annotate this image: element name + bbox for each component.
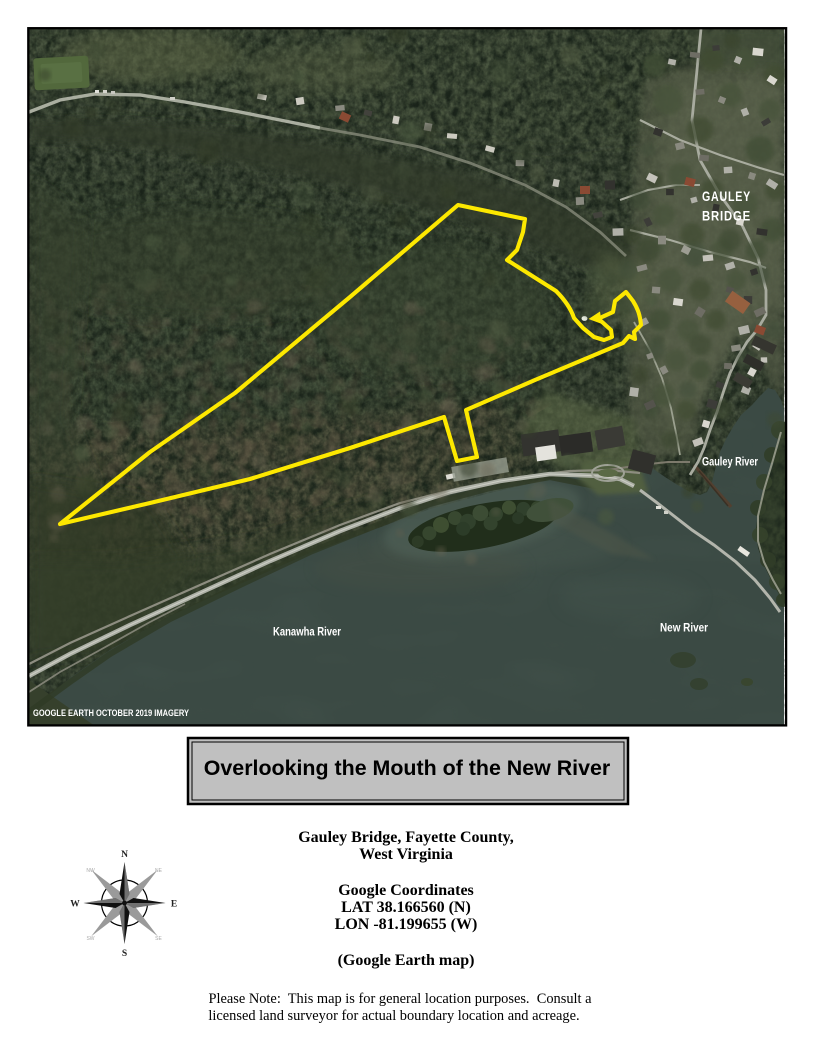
svg-text:LON -81.199655 (W): LON -81.199655 (W)	[335, 916, 478, 933]
svg-text:Gauley River: Gauley River	[702, 455, 758, 469]
svg-text:N: N	[121, 850, 128, 860]
svg-text:NW: NW	[86, 868, 95, 874]
svg-text:LAT 38.166560 (N): LAT 38.166560 (N)	[341, 899, 471, 916]
svg-text:SW: SW	[86, 936, 94, 942]
svg-text:BRIDGE: BRIDGE	[702, 209, 751, 224]
svg-text:GAULEY: GAULEY	[702, 189, 751, 204]
svg-text:(Google Earth map): (Google Earth map)	[338, 952, 475, 969]
svg-text:SE: SE	[155, 936, 162, 942]
svg-text:Please Note: This map is for: Please Note: This map is for general loc…	[208, 991, 592, 1007]
svg-text:S: S	[122, 949, 127, 959]
svg-text:NE: NE	[155, 868, 163, 874]
svg-text:Gauley Bridge, Fayette County,: Gauley Bridge, Fayette County,	[298, 829, 514, 846]
svg-text:GOOGLE EARTH OCTOBER 2019 IMAG: GOOGLE EARTH OCTOBER 2019 IMAGERY	[33, 708, 190, 719]
svg-text:E: E	[171, 900, 177, 910]
svg-text:Google Coordinates: Google Coordinates	[338, 882, 474, 899]
svg-text:licensed land surveyor for act: licensed land surveyor for actual bounda…	[208, 1008, 579, 1024]
svg-text:Overlooking the Mouth of the N: Overlooking the Mouth of the New River	[204, 756, 610, 780]
svg-text:W: W	[70, 900, 80, 910]
svg-text:New River: New River	[660, 621, 708, 635]
svg-text:West Virginia: West Virginia	[359, 846, 453, 863]
svg-text:Kanawha River: Kanawha River	[273, 625, 341, 639]
